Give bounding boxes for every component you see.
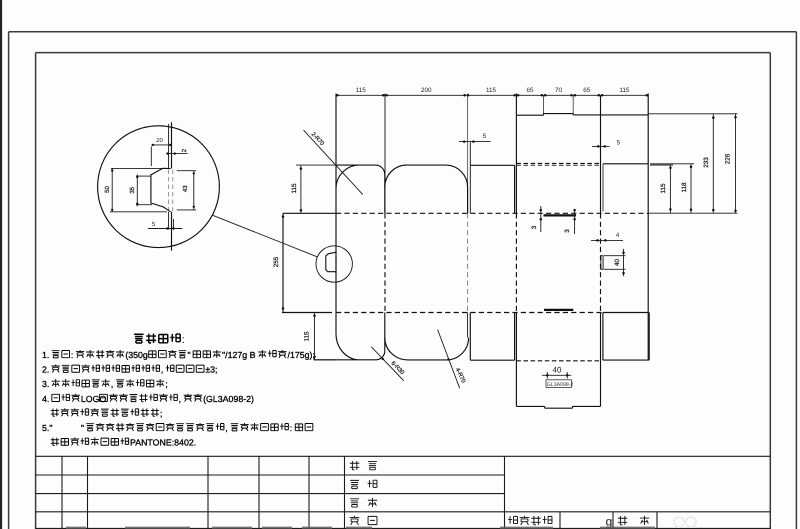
svg-text:;: ; <box>165 379 167 389</box>
svg-text:(GL3A098-2): (GL3A098-2) <box>203 394 254 404</box>
svg-text:±3;: ±3; <box>205 365 217 375</box>
svg-text:": " <box>188 350 191 360</box>
svg-text:200: 200 <box>421 87 432 94</box>
svg-text:/175g);: /175g); <box>288 350 315 360</box>
svg-text:5: 5 <box>483 133 487 140</box>
svg-text:4.: 4. <box>42 394 49 404</box>
svg-text:LOGO: LOGO <box>81 394 107 404</box>
svg-text:5: 5 <box>617 139 621 146</box>
svg-text:115: 115 <box>304 331 311 342</box>
svg-text:115: 115 <box>356 87 367 94</box>
svg-text:,: , <box>179 394 181 404</box>
svg-text:3.: 3. <box>42 379 49 389</box>
svg-text:,: , <box>111 379 113 389</box>
svg-text:(350g: (350g <box>125 350 148 360</box>
svg-text:,: , <box>161 365 163 375</box>
svg-text:233: 233 <box>703 157 710 168</box>
svg-text:g: g <box>606 515 613 529</box>
svg-text::: : <box>182 334 185 346</box>
svg-text::: : <box>290 423 292 433</box>
svg-text:1.: 1. <box>42 350 49 360</box>
svg-text:255: 255 <box>273 256 280 267</box>
svg-text:"/127g B: "/127g B <box>222 350 256 360</box>
svg-text:3: 3 <box>564 229 571 233</box>
svg-text::: : <box>71 350 73 360</box>
svg-text:2.: 2. <box>42 365 49 375</box>
svg-text:43: 43 <box>182 185 189 192</box>
svg-text:GL3A098-2: GL3A098-2 <box>547 382 574 388</box>
svg-text:PANTONE:8402.: PANTONE:8402. <box>130 438 196 448</box>
svg-text:115: 115 <box>619 87 630 94</box>
svg-text:40: 40 <box>553 366 562 375</box>
svg-text:;: ; <box>160 408 162 418</box>
svg-text:": " <box>81 423 84 433</box>
svg-text:118: 118 <box>681 182 688 193</box>
svg-text:20: 20 <box>156 137 163 144</box>
svg-text:115: 115 <box>291 183 298 194</box>
svg-text:3: 3 <box>531 225 538 229</box>
svg-text:5.": 5." <box>42 423 52 433</box>
svg-text:4: 4 <box>616 232 620 239</box>
svg-text:50: 50 <box>104 186 111 193</box>
svg-text:35: 35 <box>129 186 136 193</box>
svg-text:65: 65 <box>583 87 591 94</box>
svg-text:226: 226 <box>725 153 732 164</box>
svg-text:70: 70 <box>555 87 563 94</box>
svg-text:40: 40 <box>614 259 621 267</box>
svg-text:115: 115 <box>486 87 497 94</box>
svg-text:115: 115 <box>660 183 667 194</box>
svg-text:,: , <box>225 423 227 433</box>
svg-text:65: 65 <box>526 87 534 94</box>
